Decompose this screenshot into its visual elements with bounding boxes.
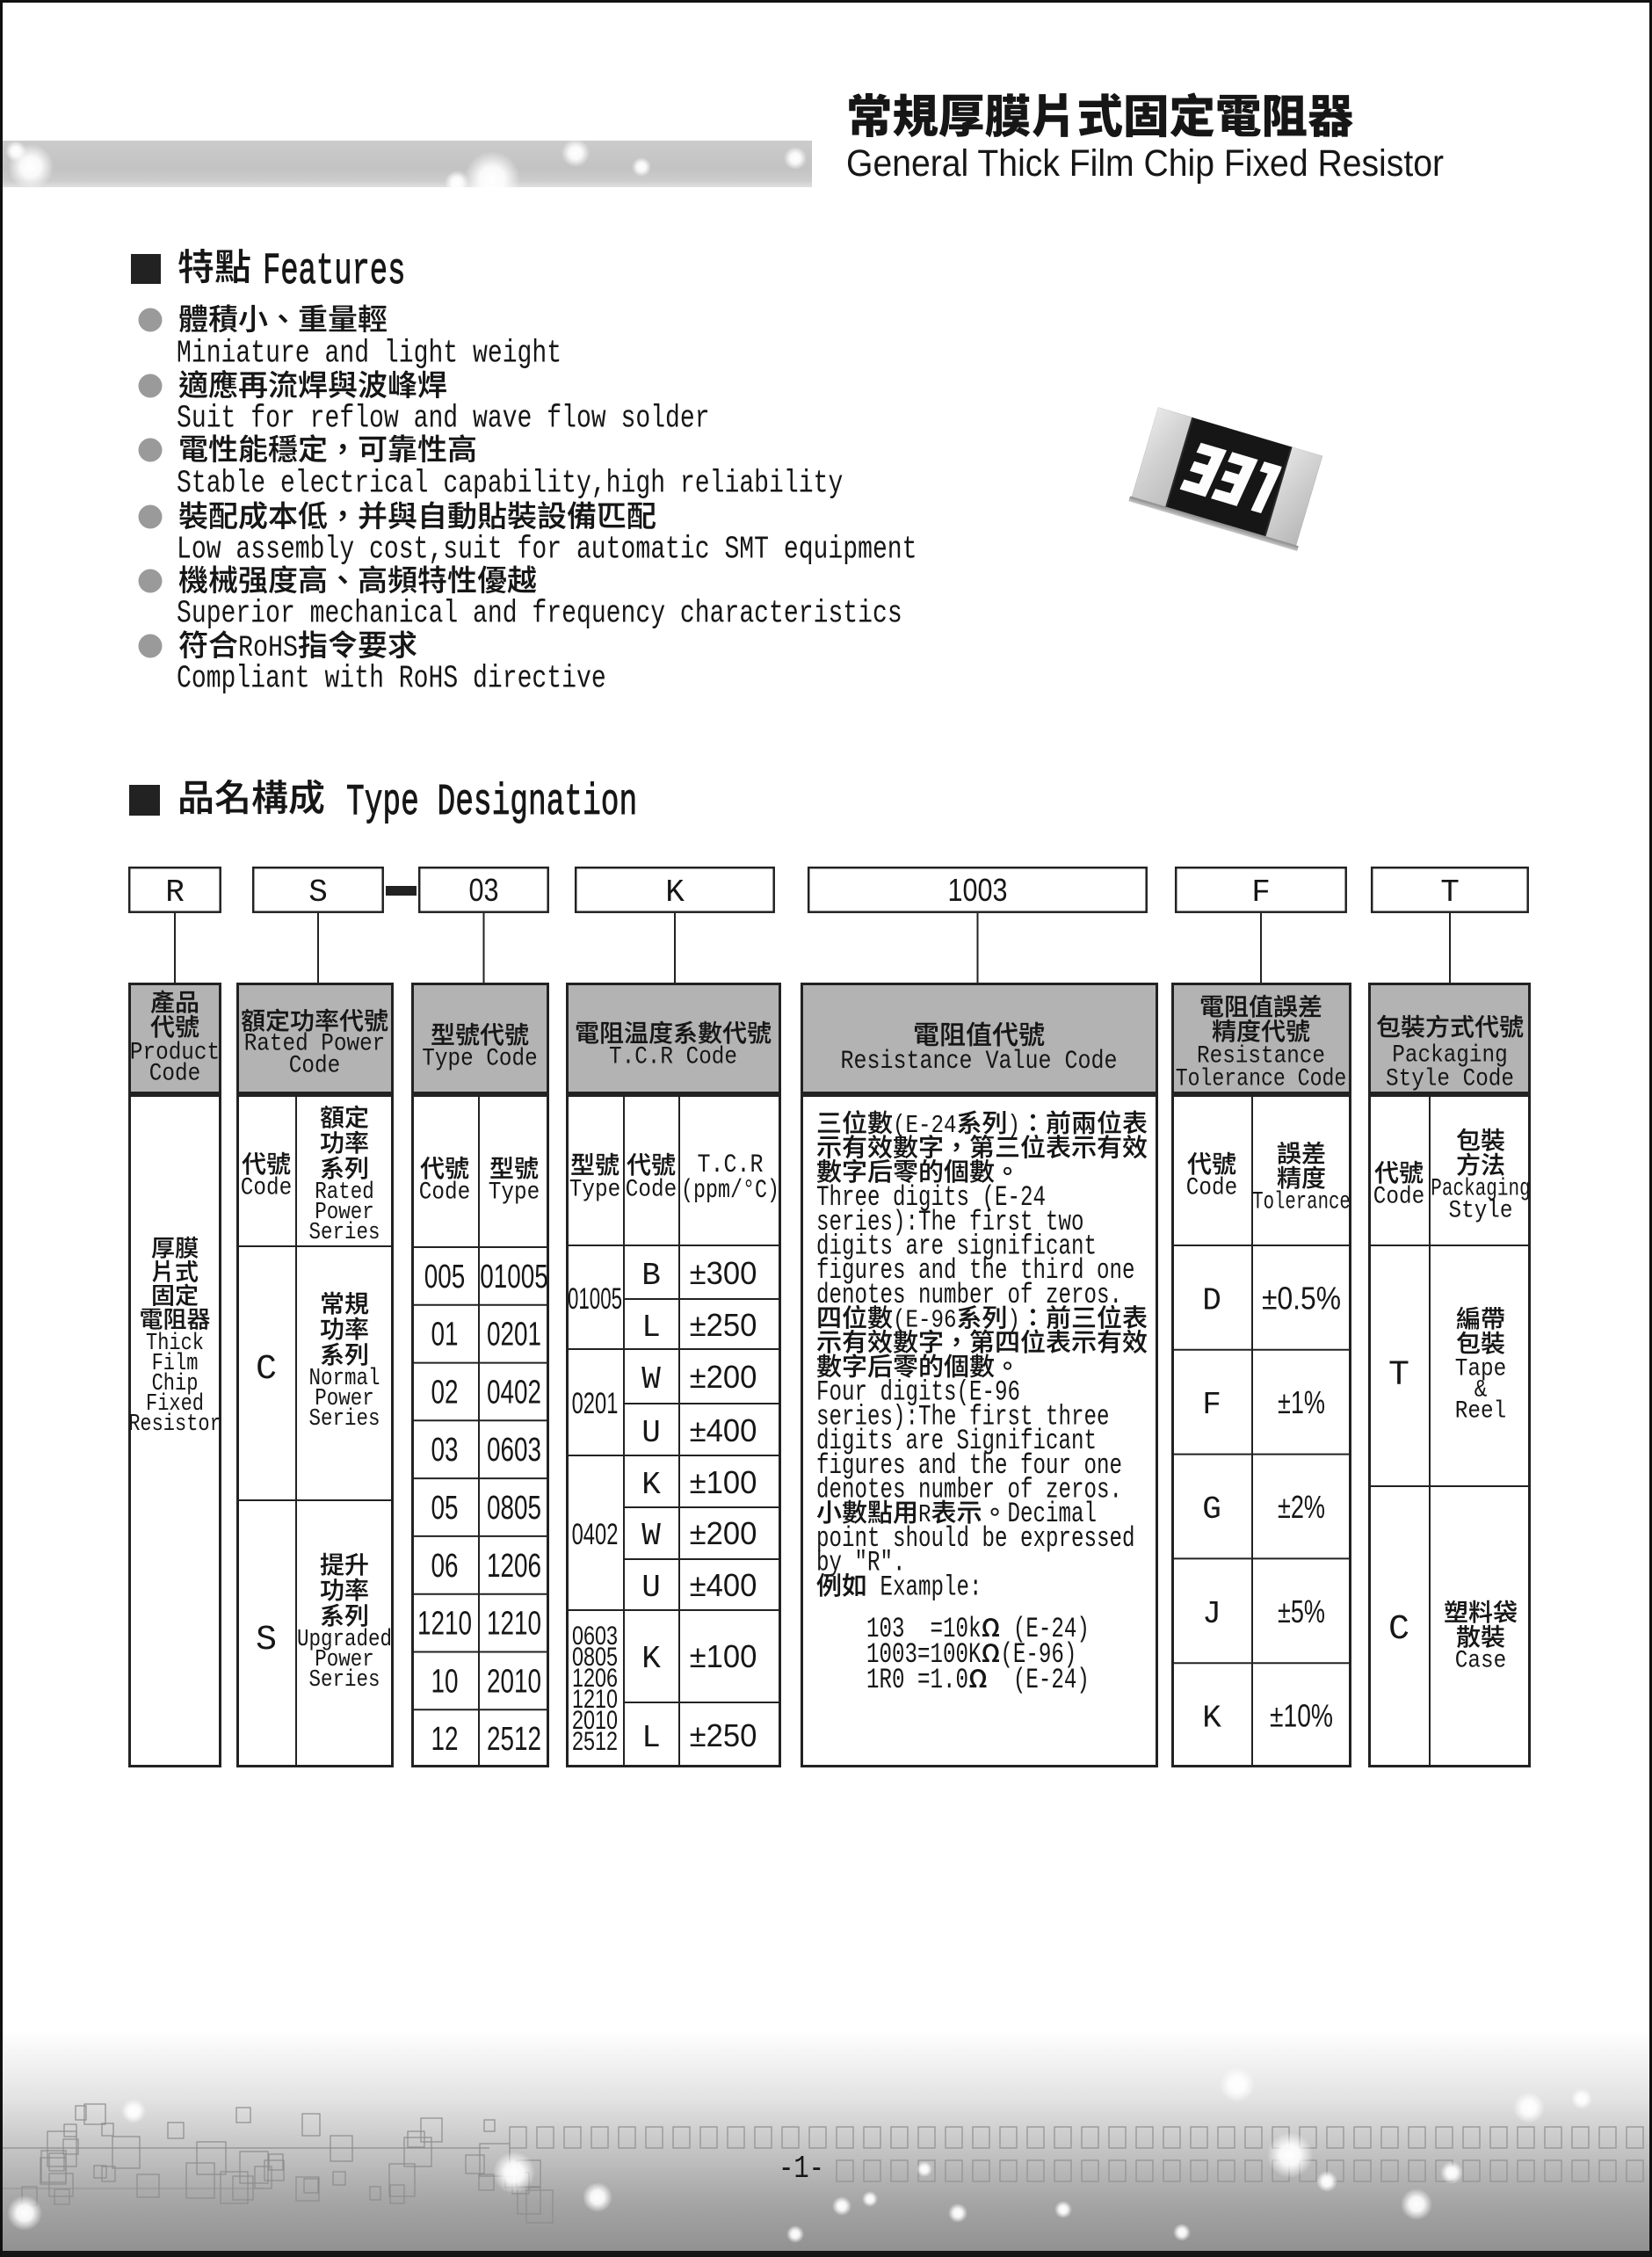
- svg-text:Case: Case: [1455, 1648, 1506, 1675]
- svg-text:K: K: [1202, 1701, 1221, 1737]
- svg-text:(ppm/°C): (ppm/°C): [681, 1176, 779, 1206]
- svg-text:Series: Series: [309, 1667, 380, 1694]
- svg-text:2512: 2512: [487, 1721, 541, 1758]
- svg-text:K: K: [665, 874, 685, 911]
- svg-text:denotes number of zeros.: denotes number of zeros.: [816, 1279, 1122, 1311]
- svg-text:Code: Code: [241, 1175, 292, 1202]
- svg-text:±400: ±400: [690, 1412, 757, 1448]
- svg-text:T.C.R Code: T.C.R Code: [609, 1044, 737, 1071]
- svg-text:01005: 01005: [480, 1259, 548, 1295]
- svg-text:F: F: [1202, 1387, 1221, 1423]
- svg-text:005: 005: [424, 1259, 466, 1295]
- svg-text:K: K: [641, 1641, 661, 1677]
- svg-text:Type: Type: [489, 1179, 540, 1207]
- svg-text:03: 03: [431, 1432, 459, 1469]
- svg-text:Stable electrical capability,h: Stable electrical capability,high reliab…: [177, 466, 843, 502]
- svg-text:0603: 0603: [487, 1432, 541, 1469]
- svg-text:Type Designation: Type Designation: [346, 778, 637, 828]
- svg-text:05: 05: [431, 1490, 459, 1527]
- svg-text:1210: 1210: [417, 1606, 472, 1643]
- svg-text:Tolerance: Tolerance: [1252, 1189, 1351, 1216]
- svg-text:10: 10: [431, 1663, 459, 1700]
- svg-text:U: U: [641, 1570, 661, 1606]
- svg-text:0805: 0805: [487, 1490, 541, 1527]
- svg-text:Compliant with RoHS directive: Compliant with RoHS directive: [177, 661, 606, 697]
- svg-text:T: T: [1388, 1356, 1409, 1396]
- svg-text:J: J: [1202, 1596, 1221, 1632]
- svg-text:C: C: [1388, 1610, 1409, 1650]
- svg-text:Miniature and light weight: Miniature and light weight: [177, 336, 562, 372]
- svg-text:Superior mechanical and freque: Superior mechanical and frequency charac…: [177, 596, 902, 632]
- svg-text:±200: ±200: [690, 1359, 757, 1395]
- svg-text:Series: Series: [309, 1406, 380, 1433]
- svg-text:U: U: [641, 1415, 661, 1451]
- svg-text:±5%: ±5%: [1278, 1593, 1325, 1629]
- svg-text:Style Code: Style Code: [1386, 1066, 1514, 1093]
- svg-text:±300: ±300: [690, 1255, 757, 1291]
- svg-text:W: W: [641, 1361, 661, 1397]
- svg-text:G: G: [1202, 1491, 1221, 1528]
- svg-text:Style: Style: [1449, 1198, 1513, 1225]
- svg-text:±0.5%: ±0.5%: [1262, 1280, 1341, 1316]
- svg-text:1R0 =1.0: 1R0 =1.0: [866, 1664, 968, 1696]
- svg-text:Type Code: Type Code: [422, 1046, 537, 1073]
- svg-text:Code: Code: [1373, 1184, 1424, 1211]
- svg-text:Resistance Value Code: Resistance Value Code: [841, 1047, 1118, 1077]
- svg-text:06: 06: [431, 1548, 459, 1585]
- svg-text:Code: Code: [289, 1053, 340, 1080]
- svg-text:01005: 01005: [568, 1282, 622, 1316]
- svg-text:(E-24): (E-24): [988, 1664, 1090, 1696]
- svg-text:1206: 1206: [487, 1548, 541, 1585]
- svg-text:R: R: [165, 874, 185, 911]
- svg-text:Code: Code: [1186, 1175, 1237, 1202]
- svg-text:General Thick Film Chip Fixed: General Thick Film Chip Fixed Resistor: [846, 142, 1444, 185]
- svg-text:Low assembly cost,suit for aut: Low assembly cost,suit for automatic SMT…: [177, 532, 917, 568]
- svg-text:0402: 0402: [572, 1518, 619, 1551]
- svg-text:W: W: [641, 1518, 661, 1554]
- svg-text:1003: 1003: [948, 872, 1008, 908]
- svg-text:Features: Features: [263, 247, 405, 297]
- svg-text:C: C: [256, 1350, 277, 1390]
- svg-text:±100: ±100: [690, 1464, 757, 1500]
- svg-text:±250: ±250: [690, 1307, 757, 1343]
- svg-text:1210: 1210: [487, 1606, 541, 1643]
- svg-text:Code: Code: [419, 1179, 470, 1207]
- svg-text:S: S: [308, 874, 328, 911]
- svg-text:F: F: [1251, 874, 1271, 911]
- svg-text:±1%: ±1%: [1278, 1384, 1325, 1420]
- svg-text:Series: Series: [309, 1220, 380, 1246]
- svg-text:B: B: [641, 1258, 661, 1294]
- svg-text:Tolerance Code: Tolerance Code: [1176, 1066, 1347, 1093]
- svg-text:01: 01: [431, 1317, 459, 1353]
- svg-text:12: 12: [431, 1721, 459, 1758]
- svg-text:Code: Code: [149, 1061, 200, 1088]
- svg-text:±2%: ±2%: [1278, 1489, 1325, 1525]
- svg-text:D: D: [1202, 1282, 1221, 1318]
- svg-text:Example:: Example:: [867, 1571, 982, 1603]
- svg-text:Resistor: Resistor: [128, 1412, 221, 1438]
- svg-text:L: L: [641, 1310, 661, 1346]
- svg-text:±250: ±250: [690, 1717, 757, 1753]
- svg-text:): ): [1008, 1111, 1021, 1140]
- svg-text:0402: 0402: [487, 1374, 541, 1411]
- svg-text:0201: 0201: [572, 1387, 619, 1420]
- svg-text:L: L: [641, 1720, 661, 1756]
- svg-text:Suit for reflow and wave flow: Suit for reflow and wave flow solder: [177, 401, 710, 437]
- svg-text:S: S: [256, 1621, 277, 1660]
- svg-text:2010: 2010: [487, 1663, 541, 1700]
- svg-text:-1-: -1-: [779, 2151, 824, 2187]
- svg-text:Code: Code: [626, 1177, 677, 1204]
- svg-text:03: 03: [469, 872, 499, 908]
- svg-text:T: T: [1440, 874, 1460, 911]
- svg-text:(E-24: (E-24: [893, 1111, 957, 1140]
- svg-text:K: K: [641, 1467, 661, 1503]
- svg-text:02: 02: [431, 1374, 459, 1411]
- svg-text:Reel: Reel: [1455, 1398, 1506, 1426]
- svg-text:±200: ±200: [690, 1515, 757, 1551]
- svg-text:0201: 0201: [487, 1317, 541, 1353]
- svg-text:±10%: ±10%: [1270, 1698, 1333, 1734]
- svg-text:±400: ±400: [690, 1567, 757, 1603]
- svg-text:): ): [1008, 1306, 1021, 1335]
- svg-text:2512: 2512: [572, 1727, 618, 1756]
- svg-text:Type: Type: [569, 1177, 620, 1204]
- svg-text:±100: ±100: [690, 1638, 757, 1674]
- svg-text:(E-96: (E-96: [893, 1306, 957, 1335]
